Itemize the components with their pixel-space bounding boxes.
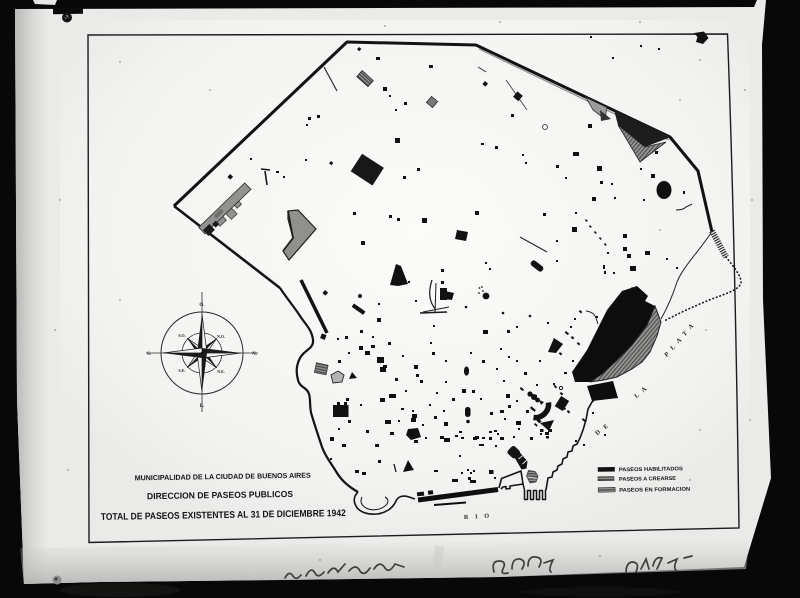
svg-text:PASEOS A CREARSE: PASEOS A CREARSE — [619, 476, 677, 483]
svg-text:N.: N. — [252, 352, 258, 357]
svg-text:PASEOS EN FORMACION: PASEOS EN FORMACION — [619, 487, 690, 494]
svg-text:O.: O. — [199, 303, 205, 308]
svg-text:S.O.: S.O. — [178, 333, 185, 338]
svg-text:PASEOS HABILITADOS: PASEOS HABILITADOS — [619, 466, 684, 473]
svg-text:N.O.: N.O. — [217, 334, 225, 339]
svg-text:S.E.: S.E. — [179, 368, 186, 373]
svg-text:R I O: R I O — [464, 513, 492, 521]
svg-text:E.: E. — [200, 404, 205, 409]
svg-text:N.E.: N.E. — [217, 369, 225, 374]
